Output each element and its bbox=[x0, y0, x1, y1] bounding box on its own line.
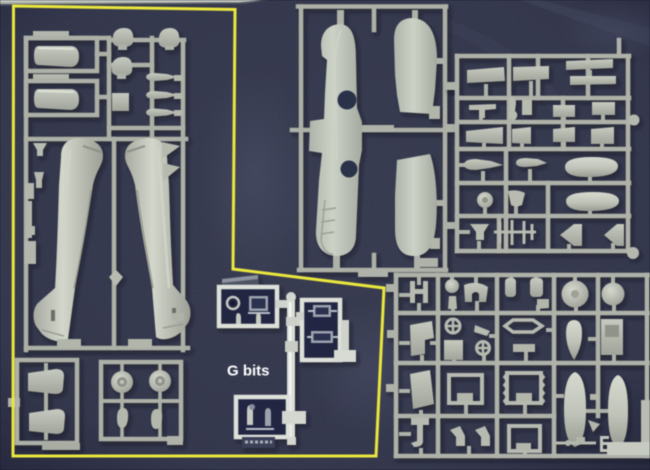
svg-text:G bits: G bits bbox=[227, 363, 270, 380]
